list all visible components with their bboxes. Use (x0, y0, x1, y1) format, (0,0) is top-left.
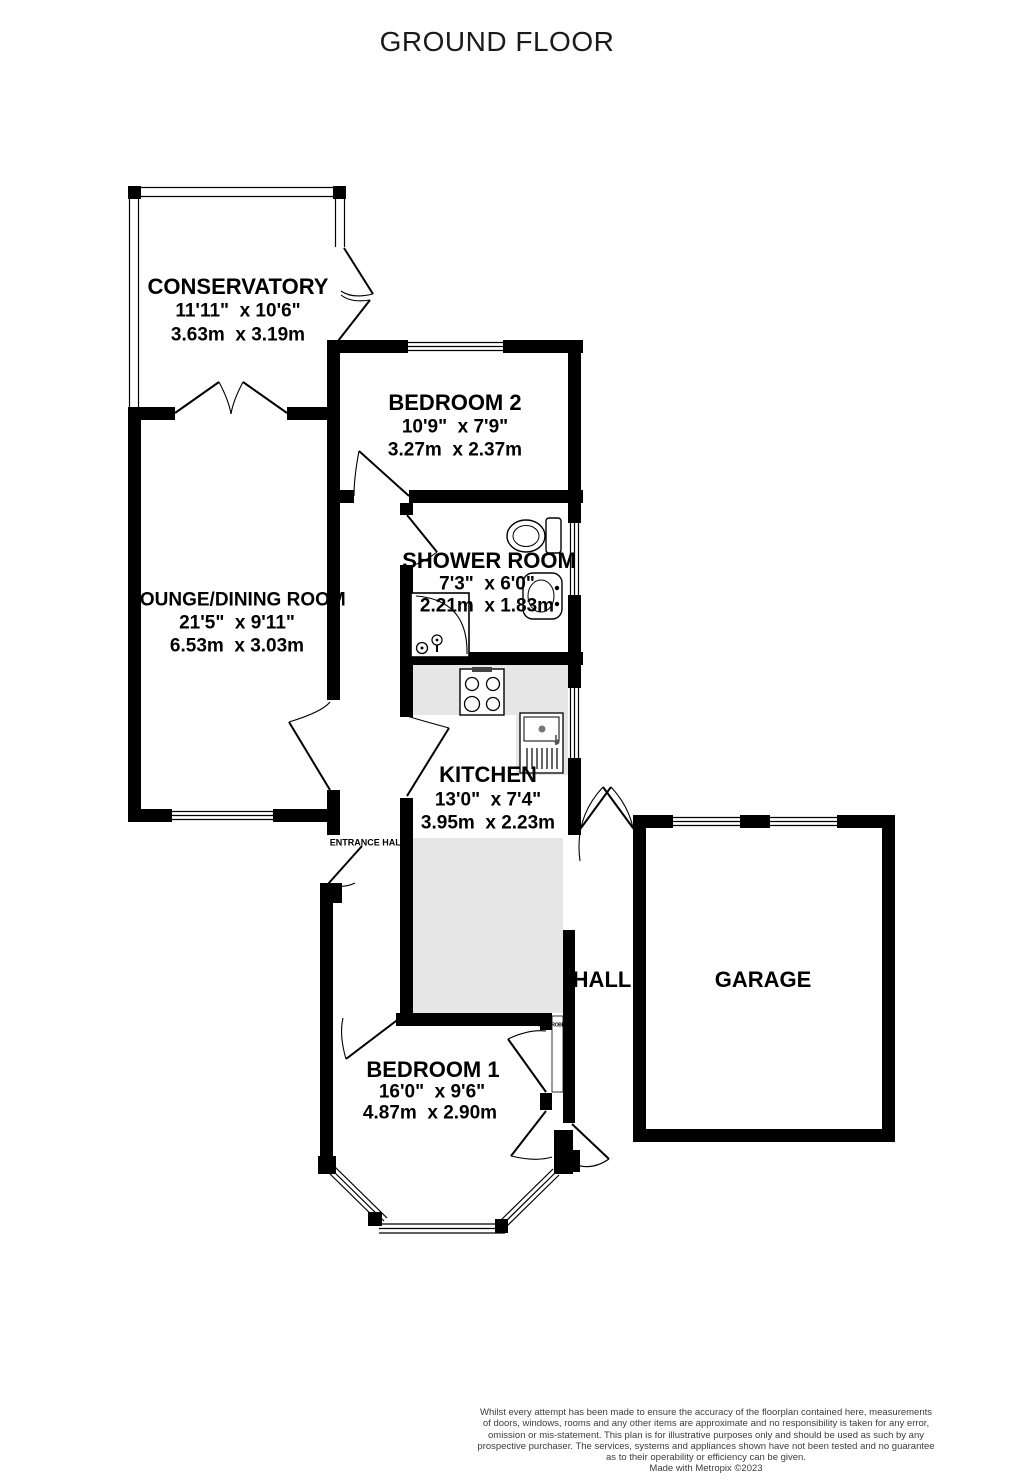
hob-fixture (460, 667, 504, 715)
conservatory-garden-doors (338, 248, 373, 341)
floorplan-drawing (0, 0, 1024, 1480)
conservatory-name: CONSERVATORY (148, 276, 329, 298)
bedroom2-dims-metric: 3.27m x 2.37m (388, 441, 522, 460)
conservatory-dims-imperial: 11'11" x 10'6" (175, 302, 300, 321)
windows (172, 343, 837, 1234)
bedroom1-name: BEDROOM 1 (366, 1059, 499, 1081)
bedroom1-dims-imperial: 16'0" x 9'6" (379, 1083, 485, 1102)
conservatory-dims-metric: 3.63m x 3.19m (171, 326, 305, 345)
disclaimer-line: of doors, windows, rooms and any other i… (396, 1418, 1016, 1429)
lounge-dining-name: LOUNGE/DINING ROOM (128, 591, 345, 610)
kitchen-dims-metric: 3.95m x 2.23m (421, 814, 555, 833)
kitchen-name: KITCHEN (439, 764, 537, 786)
disclaimer-line: Made with Metropix ©2023 (396, 1463, 1016, 1474)
lounge-dining-dims-imperial: 21'5" x 9'11" (179, 614, 295, 633)
floorplan-page: GROUND FLOOR CONSERVATORY 11'11" x 10'6"… (0, 0, 1024, 1480)
lounge-door (289, 722, 330, 790)
bedroom1-hall-door-lower (511, 1111, 546, 1156)
shower-room-dims-imperial: 7'3" x 6'0" (439, 575, 535, 594)
kitchen-dims-imperial: 13'0" x 7'4" (435, 791, 541, 810)
bedroom1-door (346, 1018, 400, 1059)
bedroom1-hall-door-upper (508, 1039, 546, 1092)
disclaimer-line: as to their operability or efficiency ca… (396, 1452, 1016, 1463)
conservatory-french-doors (175, 382, 287, 413)
garage-name: GARAGE (715, 969, 812, 991)
wardrobe-name: WARDROBE (537, 1024, 564, 1029)
entrance-hall-name: ENTRANCE HALL (330, 839, 407, 848)
disclaimer-line: Whilst every attempt has been made to en… (396, 1407, 1016, 1418)
hall-name: HALL (573, 969, 632, 991)
bedroom2-dims-imperial: 10'9" x 7'9" (402, 418, 508, 437)
disclaimer-line: prospective purchaser. The services, sys… (396, 1441, 1016, 1452)
shower-room-dims-metric: 2.21m x 1.83m (420, 597, 554, 616)
entrance-hall-door (328, 846, 362, 884)
shower-room-name: SHOWER ROOM (402, 550, 576, 572)
disclaimer-line: omission or mis-statement. This plan is … (396, 1430, 1016, 1441)
bedroom2-name: BEDROOM 2 (388, 392, 521, 414)
disclaimer: Whilst every attempt has been made to en… (396, 1407, 1016, 1475)
shower-room-door (407, 515, 437, 552)
page-title: GROUND FLOOR (380, 26, 615, 58)
lounge-dining-dims-metric: 6.53m x 3.03m (170, 637, 304, 656)
bedroom1-dims-metric: 4.87m x 2.90m (363, 1104, 497, 1123)
